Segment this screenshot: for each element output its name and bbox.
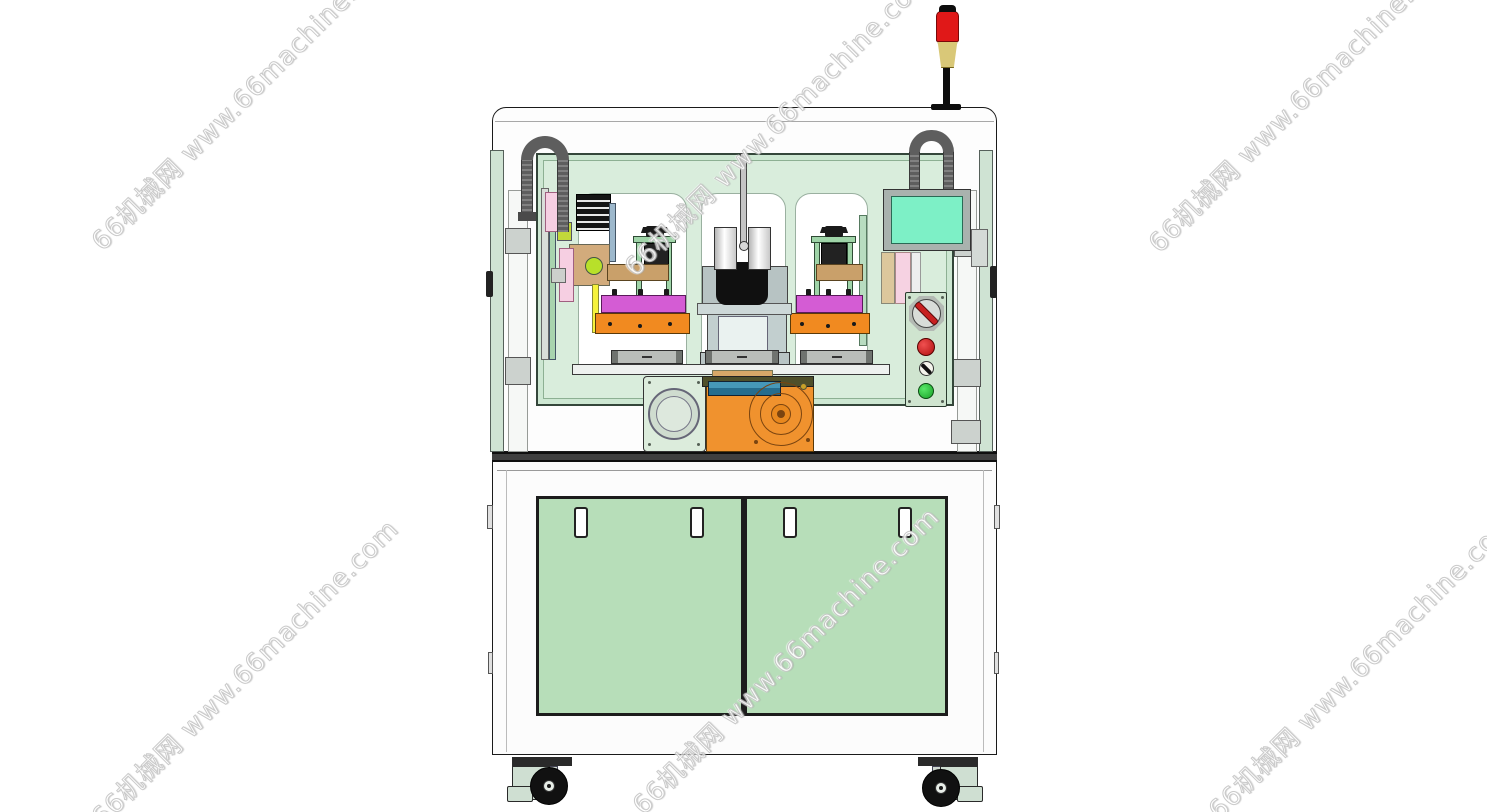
caster-foot-right xyxy=(957,786,983,802)
side-tab xyxy=(994,652,999,674)
linear-motor-module xyxy=(576,194,611,231)
bolt xyxy=(852,322,856,326)
gray-bracket xyxy=(551,268,566,283)
press-cylinder xyxy=(714,227,737,270)
side-tab xyxy=(488,652,493,674)
hinge-bracket xyxy=(505,228,531,254)
clamp-knob xyxy=(825,226,843,237)
cabinet-door-left[interactable] xyxy=(536,496,744,716)
hinge-bracket xyxy=(953,359,981,387)
screw xyxy=(941,400,944,403)
hinge-bracket xyxy=(505,357,531,385)
caster-plate-left xyxy=(512,757,572,766)
door-handle[interactable] xyxy=(690,507,704,538)
signal-light-red xyxy=(936,11,959,42)
frame-separator xyxy=(492,452,997,462)
cabinet-side-line xyxy=(506,470,507,752)
signal-tower-base xyxy=(931,104,961,110)
side-glass-left xyxy=(490,150,504,452)
slide-rail xyxy=(611,350,683,364)
clamp-bar-tan xyxy=(816,264,863,281)
station-crossbar xyxy=(811,236,856,243)
screw xyxy=(697,381,700,384)
enclosure-top-line xyxy=(495,121,994,122)
cable-chain-right-leg xyxy=(943,152,954,192)
caster-plate-right xyxy=(918,757,978,766)
cable-chain-right-leg xyxy=(909,152,920,192)
watermark-text: 66机械网 www.66machine.com xyxy=(82,0,406,258)
monitor-screen xyxy=(891,196,963,244)
watermark-text: 66机械网 www.66machine.com xyxy=(1139,0,1463,260)
screw xyxy=(648,381,651,384)
screw xyxy=(908,400,911,403)
vertical-rail-green xyxy=(549,215,556,360)
back-panel-cutout-right xyxy=(795,193,868,374)
motor-ring-inner xyxy=(656,396,692,432)
bolt xyxy=(806,438,810,442)
fixture-plate-magenta xyxy=(796,295,863,313)
slide-rail xyxy=(705,350,779,364)
bolt xyxy=(800,322,804,326)
bolt xyxy=(608,322,612,326)
side-tab xyxy=(487,505,493,529)
emergency-stop-button[interactable] xyxy=(917,338,935,356)
cabinet-side-line xyxy=(983,470,984,752)
tan-column xyxy=(881,252,895,304)
watermark-text: 66机械网 www.66machine.com xyxy=(1199,503,1487,812)
caster-foot-left xyxy=(507,786,533,802)
slide-rail xyxy=(800,350,873,364)
hinge-bracket xyxy=(951,420,981,444)
screw xyxy=(697,443,700,446)
cable-chain-left-leg xyxy=(521,160,533,216)
cable-chain-left-end xyxy=(518,212,536,221)
signal-tower-pole xyxy=(943,66,950,108)
signal-tower-cap xyxy=(939,5,956,12)
door-handle[interactable] xyxy=(574,507,588,538)
bolt xyxy=(826,324,830,328)
door-latch-right xyxy=(990,266,997,298)
gearbox-hub xyxy=(777,410,785,418)
screw xyxy=(908,296,911,299)
screw xyxy=(648,443,651,446)
door-handle[interactable] xyxy=(783,507,797,538)
hub-dot xyxy=(547,784,551,788)
sensor-eye xyxy=(585,257,603,275)
screw xyxy=(941,296,944,299)
door-latch-left xyxy=(486,271,493,297)
machine-illustration: 66机械网 www.66machine.com 66机械网 www.66mach… xyxy=(0,0,1487,812)
watermark-text: 66机械网 www.66machine.com xyxy=(82,510,406,812)
cable-chain-left-leg xyxy=(557,160,569,232)
steel-blue-bar xyxy=(609,203,616,262)
start-button[interactable] xyxy=(918,383,934,399)
bolt xyxy=(754,440,758,444)
fixture-plate-magenta xyxy=(601,295,686,313)
monitor-bracket xyxy=(971,229,988,267)
bolt xyxy=(638,324,642,328)
side-tab xyxy=(994,505,1000,529)
hub-dot xyxy=(939,786,943,790)
bolt xyxy=(668,322,672,326)
cabinet-top-line xyxy=(497,470,992,471)
side-glass-right xyxy=(979,150,993,452)
press-cylinder xyxy=(748,227,771,270)
press-rod-coupler xyxy=(739,241,749,251)
signal-light-yellow xyxy=(937,40,958,68)
